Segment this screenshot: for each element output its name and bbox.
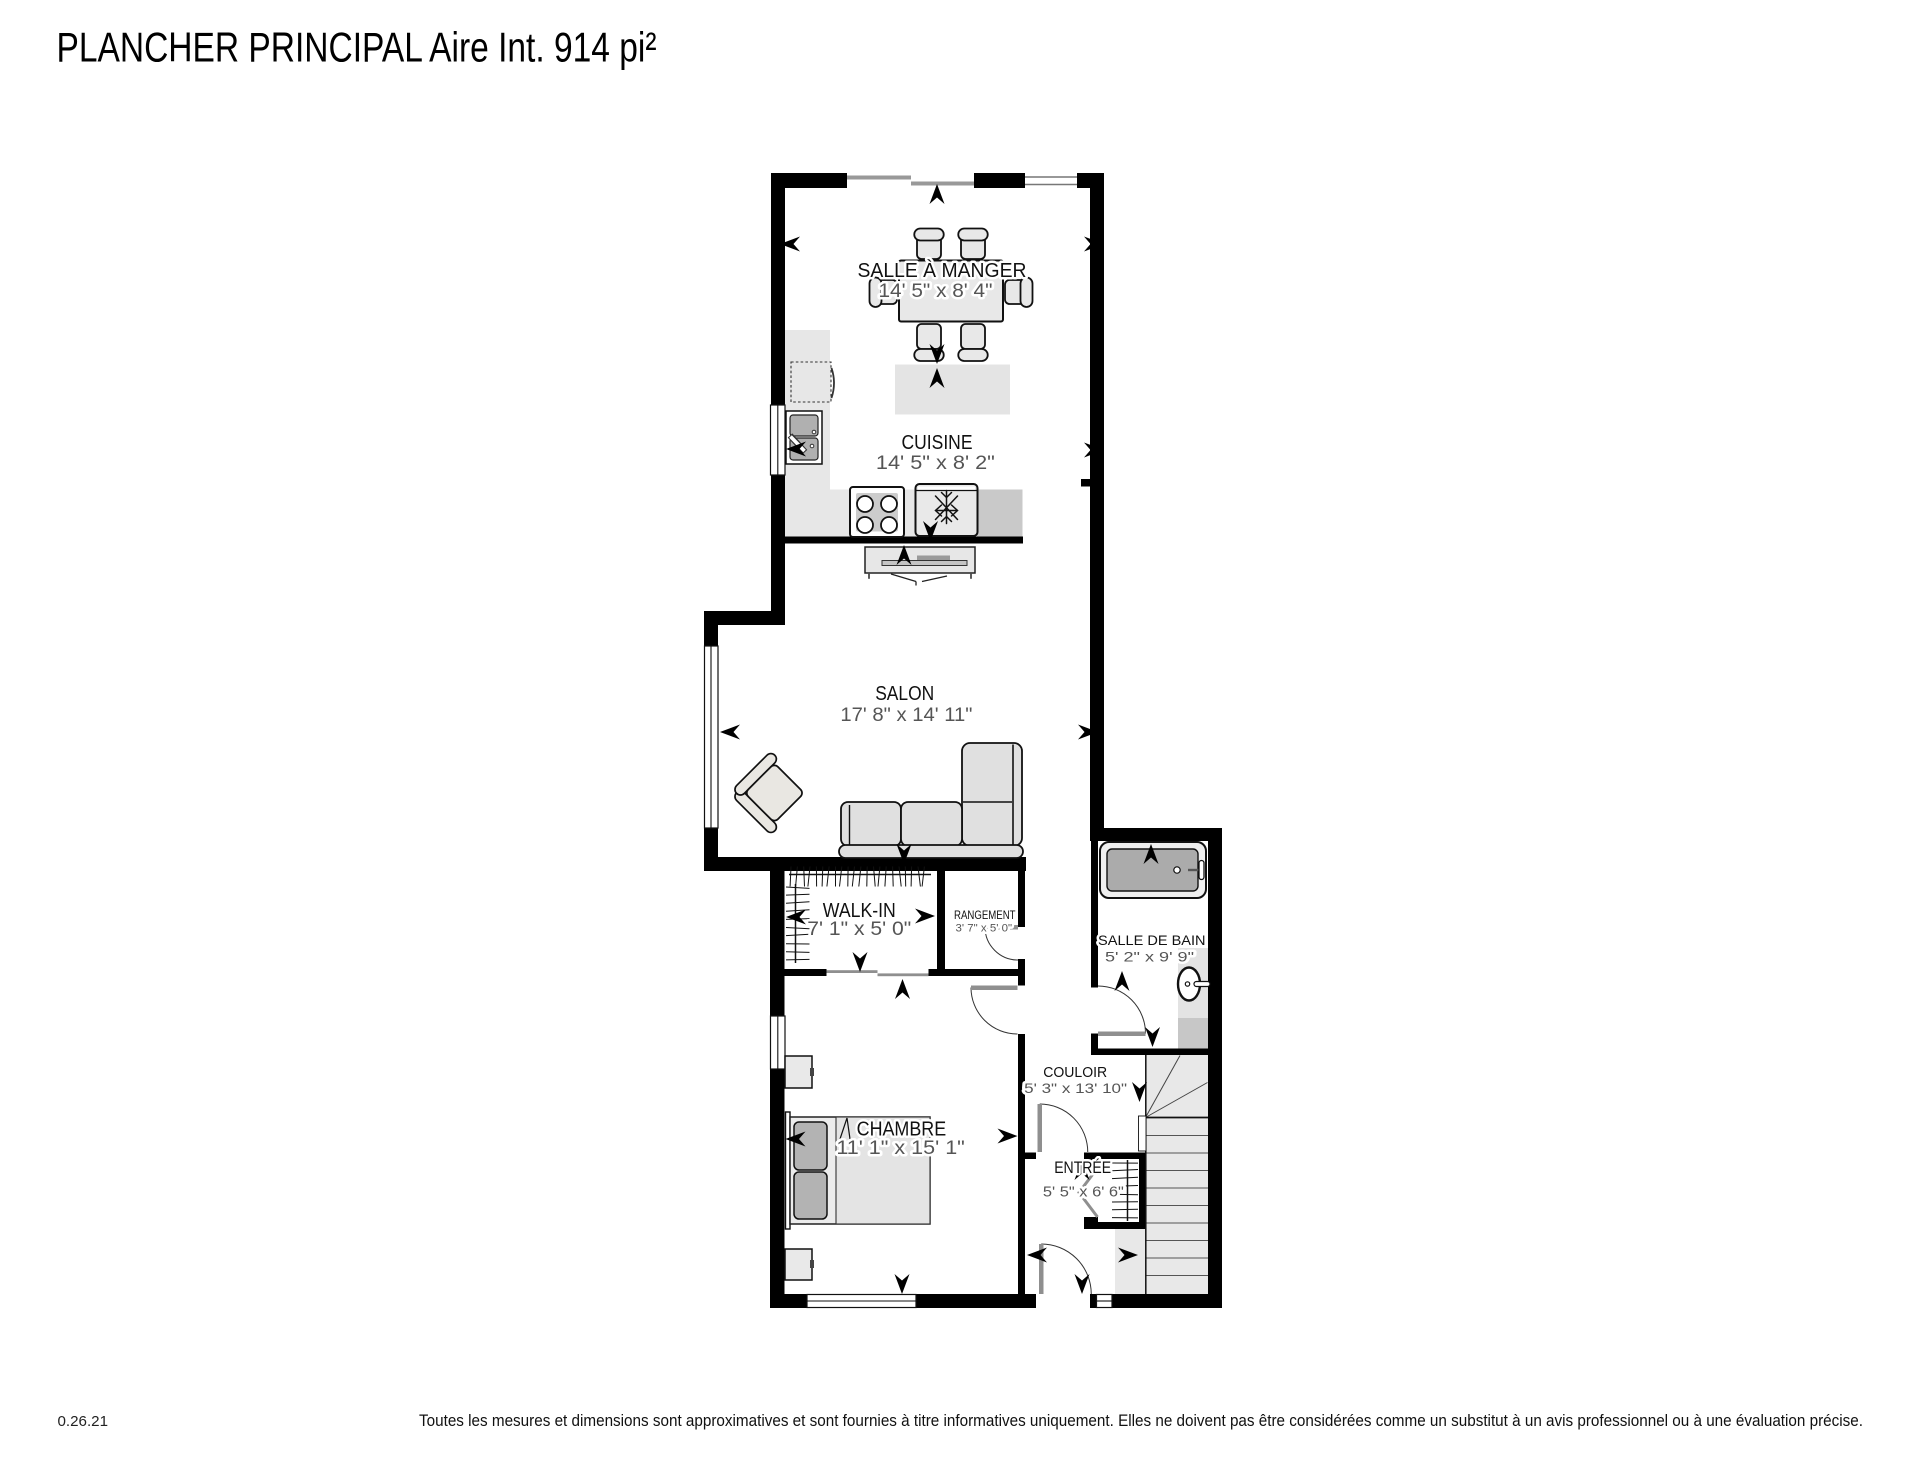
svg-text:7' 1" x 5' 0": 7' 1" x 5' 0" [807, 919, 911, 940]
svg-text:COULOIR: COULOIR [1043, 1065, 1107, 1081]
svg-text:Toutes les mesures et dimensio: Toutes les mesures et dimensions sont ap… [419, 1411, 1863, 1430]
svg-text:0.26.21: 0.26.21 [58, 1413, 109, 1430]
svg-text:3' 7" x 5' 0": 3' 7" x 5' 0" [956, 923, 1013, 935]
svg-text:SALLE À MANGER: SALLE À MANGER [858, 259, 1027, 282]
svg-text:5' 5" x 6' 6": 5' 5" x 6' 6" [1043, 1185, 1124, 1201]
svg-text:14' 5" x 8' 4": 14' 5" x 8' 4" [879, 281, 993, 302]
svg-text:PLANCHER PRINCIPAL Aire Int. 9: PLANCHER PRINCIPAL Aire Int. 914 pi² [57, 24, 657, 71]
svg-text:CUISINE: CUISINE [902, 432, 973, 454]
svg-text:5' 2" x 9' 9": 5' 2" x 9' 9" [1105, 950, 1194, 965]
svg-text:ENTRÉE: ENTRÉE [1054, 1158, 1111, 1177]
svg-text:RANGEMENT: RANGEMENT [954, 908, 1016, 922]
svg-text:17' 8" x 14' 11": 17' 8" x 14' 11" [840, 705, 972, 726]
svg-text:SALLE DE BAIN: SALLE DE BAIN [1098, 932, 1206, 948]
svg-text:5' 3" x 13' 10": 5' 3" x 13' 10" [1024, 1081, 1127, 1096]
svg-text:SALON: SALON [875, 683, 934, 705]
svg-text:14' 5" x 8' 2": 14' 5" x 8' 2" [876, 453, 995, 474]
svg-text:11' 1" x 15' 1": 11' 1" x 15' 1" [836, 1138, 965, 1159]
